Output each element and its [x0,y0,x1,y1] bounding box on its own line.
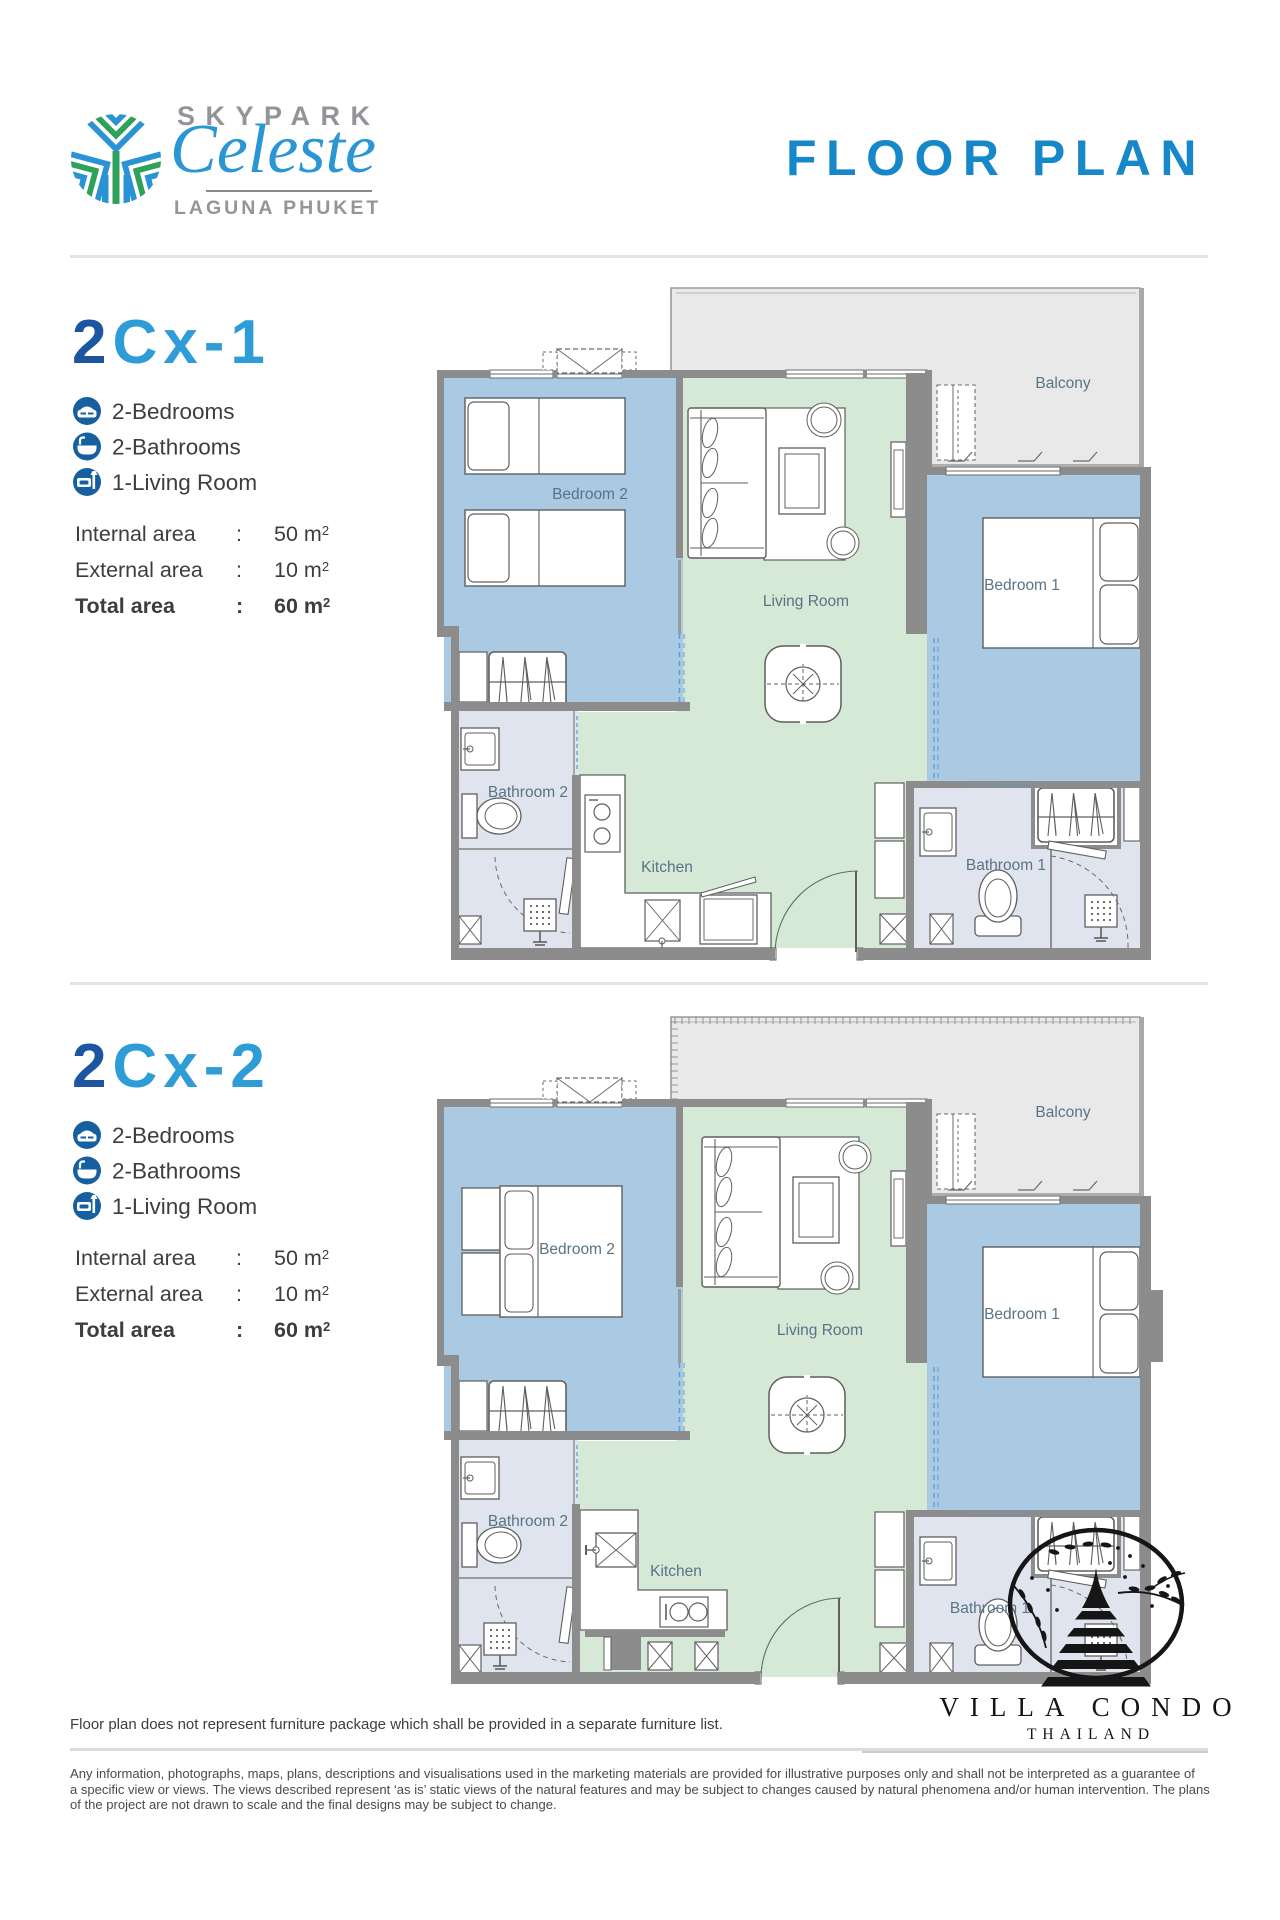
svg-text:1-Living Room: 1-Living Room [112,470,257,495]
svg-text:VILLA CONDO: VILLA CONDO [939,1692,1242,1722]
svg-text:2-Bathrooms: 2-Bathrooms [112,1159,241,1184]
svg-text:Kitchen: Kitchen [650,1563,702,1580]
svg-text:Bedroom 2: Bedroom 2 [539,1241,615,1258]
svg-text:Bedroom 1: Bedroom 1 [984,577,1060,594]
svg-text:Bedroom 2: Bedroom 2 [552,486,628,503]
svg-text:Balcony: Balcony [1035,1104,1090,1121]
svg-text:2-Bedrooms: 2-Bedrooms [112,1123,235,1148]
svg-text:1-Living Room: 1-Living Room [112,1194,257,1219]
svg-text:2-Bedrooms: 2-Bedrooms [112,399,235,424]
svg-text:2-Bathrooms: 2-Bathrooms [112,435,241,460]
svg-text:Living Room: Living Room [763,593,849,610]
svg-text:Balcony: Balcony [1035,375,1090,392]
svg-text:Bathroom 1: Bathroom 1 [966,857,1046,874]
svg-text:THAILAND: THAILAND [1027,1726,1155,1743]
svg-text:Bathroom 2: Bathroom 2 [488,1513,568,1530]
svg-text:Bedroom 1: Bedroom 1 [984,1306,1060,1323]
svg-text:Bathroom 2: Bathroom 2 [488,784,568,801]
svg-text:Living Room: Living Room [777,1322,863,1339]
svg-text:Kitchen: Kitchen [641,859,693,876]
